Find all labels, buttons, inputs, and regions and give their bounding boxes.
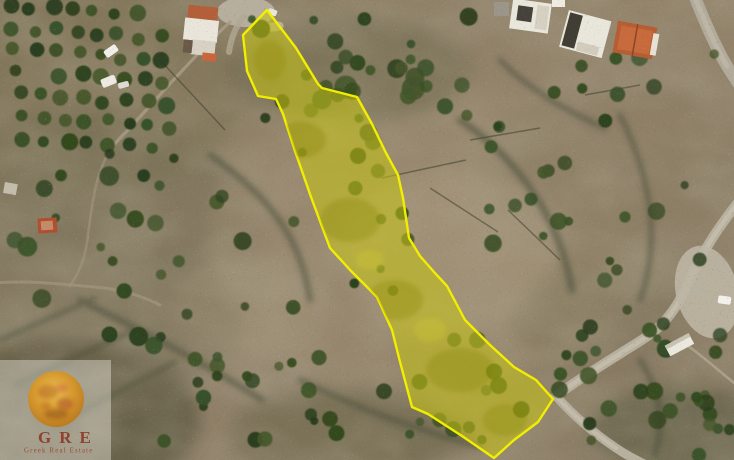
satellite-map: GRE Greek Real Estate: [0, 0, 734, 460]
map-image: GRE Greek Real Estate: [0, 0, 734, 460]
gre-logo-icon: [28, 371, 84, 427]
gre-logo-subtext: Greek Real Estate: [24, 448, 93, 455]
watermark-panel: GRE Greek Real Estate: [0, 360, 111, 460]
gre-logo-text: GRE: [38, 428, 99, 447]
